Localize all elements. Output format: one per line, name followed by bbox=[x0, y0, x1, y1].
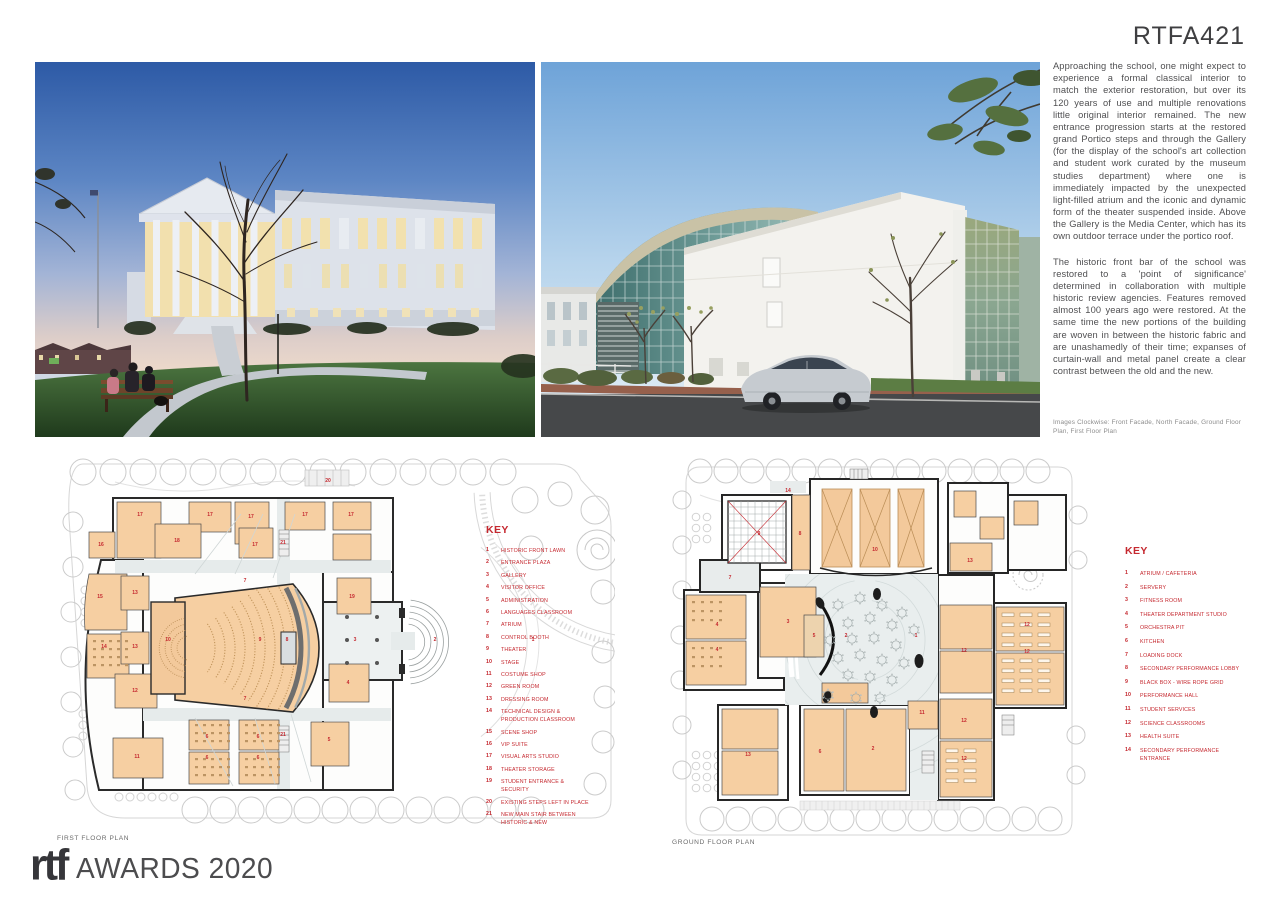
svg-text:19: 19 bbox=[349, 594, 355, 600]
svg-text:8: 8 bbox=[286, 637, 289, 643]
key-items: 1HISTORIC FRONT LAWN2ENTRANCE PLAZA3GALL… bbox=[486, 547, 592, 828]
key-row: 11STUDENT SERVICES bbox=[1125, 706, 1249, 714]
svg-text:7: 7 bbox=[729, 575, 732, 581]
hatched-walk bbox=[800, 801, 960, 810]
svg-text:17: 17 bbox=[302, 512, 308, 518]
svg-text:6: 6 bbox=[206, 734, 209, 740]
svg-text:1: 1 bbox=[915, 633, 918, 639]
svg-text:12: 12 bbox=[961, 756, 967, 762]
svg-text:9: 9 bbox=[758, 531, 761, 537]
ground-floor-plan: 1498101374352112412121112136212 bbox=[670, 455, 1090, 850]
key-row: 12SCIENCE CLASSROOMS bbox=[1125, 720, 1249, 728]
key-row: 12GREEN ROOM bbox=[486, 683, 592, 691]
svg-text:2: 2 bbox=[434, 637, 437, 643]
presentation-board: RTFA421 bbox=[0, 0, 1273, 900]
svg-text:12: 12 bbox=[961, 718, 967, 724]
svg-text:17: 17 bbox=[207, 512, 213, 518]
image-caption: Images Clockwise: Front Facade, North Fa… bbox=[1053, 419, 1246, 436]
key-row: 3FITNESS ROOM bbox=[1125, 597, 1249, 605]
key-row: 20EXISTING STEPS LEFT IN PLACE bbox=[486, 799, 592, 807]
svg-text:2: 2 bbox=[845, 633, 848, 639]
key-items: 1ATRIUM / CAFETERIA2SERVERY3FITNESS ROOM… bbox=[1125, 570, 1249, 763]
key-title: KEY bbox=[486, 524, 592, 536]
svg-text:7: 7 bbox=[244, 578, 247, 584]
svg-text:5: 5 bbox=[813, 633, 816, 639]
key-row: 19STUDENT ENTRANCE & SECURITY bbox=[486, 778, 592, 794]
svg-text:13: 13 bbox=[745, 752, 751, 758]
key-row: 3GALLERY bbox=[486, 572, 592, 580]
ground-floor-plan-drawing: 1498101374352112412121112136212 bbox=[670, 455, 1090, 850]
paragraph-2: The historic front bar of the school was… bbox=[1053, 256, 1246, 378]
footer-logo-block: rtf AWARDS 2020 bbox=[30, 847, 280, 884]
page-title: RTFA421 bbox=[1133, 22, 1245, 51]
svg-text:13: 13 bbox=[132, 644, 138, 650]
historic-wing bbox=[541, 287, 603, 382]
rtf-logo: rtf bbox=[30, 847, 66, 884]
svg-text:17: 17 bbox=[137, 512, 143, 518]
key-row: 11COSTUME SHOP bbox=[486, 671, 592, 679]
front-facade-photo bbox=[35, 62, 535, 437]
svg-text:18: 18 bbox=[174, 538, 180, 544]
svg-text:12: 12 bbox=[132, 688, 138, 694]
svg-text:17: 17 bbox=[348, 512, 354, 518]
first-floor-plan-label: FIRST FLOOR PLAN bbox=[57, 835, 129, 842]
key-row: 5ADMINISTRATION bbox=[486, 597, 592, 605]
north-facade-illustration bbox=[541, 62, 1040, 437]
svg-text:3: 3 bbox=[354, 637, 357, 643]
svg-text:6: 6 bbox=[257, 755, 260, 761]
svg-text:20: 20 bbox=[325, 478, 331, 484]
svg-text:11: 11 bbox=[134, 754, 140, 760]
key-row: 13DRESSING ROOM bbox=[486, 696, 592, 704]
ground-floor-key: KEY 1ATRIUM / CAFETERIA2SERVERY3FITNESS … bbox=[1125, 545, 1249, 769]
key-row: 1ATRIUM / CAFETERIA bbox=[1125, 570, 1249, 578]
key-row: 10PERFORMANCE HALL bbox=[1125, 692, 1249, 700]
key-row: 21NEW MAIN STAIR BETWEEN HISTORIC & NEW bbox=[486, 811, 592, 827]
awards-title: AWARDS 2020 bbox=[76, 855, 273, 884]
key-row: 16VIP SUITE bbox=[486, 741, 592, 749]
first-floor-key: KEY 1HISTORIC FRONT LAWN2ENTRANCE PLAZA3… bbox=[486, 524, 592, 832]
description-column: Approaching the school, one might expect… bbox=[1053, 60, 1246, 390]
svg-text:10: 10 bbox=[165, 637, 171, 643]
ground-floor-plan-label: GROUND FLOOR PLAN bbox=[672, 839, 755, 846]
key-row: 2ENTRANCE PLAZA bbox=[486, 559, 592, 567]
svg-text:16: 16 bbox=[98, 542, 104, 548]
right-glass-volume bbox=[953, 210, 1040, 394]
svg-text:12: 12 bbox=[1024, 649, 1030, 655]
svg-text:4: 4 bbox=[716, 647, 719, 653]
svg-text:4: 4 bbox=[347, 680, 350, 686]
stage bbox=[151, 602, 185, 694]
svg-text:10: 10 bbox=[872, 547, 878, 553]
key-row: 5ORCHESTRA PIT bbox=[1125, 624, 1249, 632]
key-row: 15SCENE SHOP bbox=[486, 729, 592, 737]
key-row: 14SECONDARY PERFORMANCE ENTRANCE bbox=[1125, 747, 1249, 763]
svg-text:7: 7 bbox=[244, 696, 247, 702]
key-row: 6KITCHEN bbox=[1125, 638, 1249, 646]
svg-text:2: 2 bbox=[872, 746, 875, 752]
theater bbox=[151, 578, 319, 718]
key-row: 9THEATER bbox=[486, 646, 592, 654]
svg-text:9: 9 bbox=[259, 637, 262, 643]
key-title: KEY bbox=[1125, 545, 1249, 557]
classical-school-building bbox=[127, 178, 495, 334]
north-facade-photo bbox=[541, 62, 1040, 437]
key-row: 4THEATER DEPARTMENT STUDIO bbox=[1125, 611, 1249, 619]
svg-text:15: 15 bbox=[97, 594, 103, 600]
svg-text:14: 14 bbox=[785, 488, 791, 494]
svg-text:21: 21 bbox=[280, 540, 286, 546]
svg-text:17: 17 bbox=[252, 542, 258, 548]
key-row: 4VISITOR OFFICE bbox=[486, 584, 592, 592]
key-row: 8CONTROL BOOTH bbox=[486, 634, 592, 642]
svg-text:6: 6 bbox=[206, 755, 209, 761]
svg-text:17: 17 bbox=[248, 514, 254, 520]
svg-text:6: 6 bbox=[819, 749, 822, 755]
paragraph-1: Approaching the school, one might expect… bbox=[1053, 60, 1246, 243]
key-row: 17VISUAL ARTS STUDIO bbox=[486, 753, 592, 761]
svg-text:4: 4 bbox=[716, 622, 719, 628]
key-row: 18THEATER STORAGE bbox=[486, 766, 592, 774]
key-row: 2SERVERY bbox=[1125, 584, 1249, 592]
svg-text:21: 21 bbox=[280, 732, 286, 738]
front-facade-illustration bbox=[35, 62, 535, 437]
svg-text:8: 8 bbox=[799, 531, 802, 537]
svg-text:12: 12 bbox=[1024, 622, 1030, 628]
key-row: 9BLACK BOX - WIRE ROPE GRID bbox=[1125, 679, 1249, 687]
key-row: 8SECONDARY PERFORMANCE LOBBY bbox=[1125, 665, 1249, 673]
svg-text:6: 6 bbox=[257, 734, 260, 740]
key-row: 1HISTORIC FRONT LAWN bbox=[486, 547, 592, 555]
svg-text:14: 14 bbox=[101, 644, 107, 650]
svg-text:13: 13 bbox=[132, 590, 138, 596]
key-row: 10STAGE bbox=[486, 659, 592, 667]
svg-text:5: 5 bbox=[328, 737, 331, 743]
svg-text:11: 11 bbox=[919, 710, 925, 716]
svg-text:12: 12 bbox=[961, 648, 967, 654]
svg-text:3: 3 bbox=[787, 619, 790, 625]
key-row: 7ATRIUM bbox=[486, 621, 592, 629]
svg-text:13: 13 bbox=[967, 558, 973, 564]
control-booth bbox=[281, 632, 296, 664]
key-row: 14TECHNICAL DESIGN & PRODUCTION CLASSROO… bbox=[486, 708, 592, 724]
key-row: 13HEALTH SUITE bbox=[1125, 733, 1249, 741]
key-row: 6LANGUAGES CLASSROOM bbox=[486, 609, 592, 617]
key-row: 7LOADING DOCK bbox=[1125, 652, 1249, 660]
